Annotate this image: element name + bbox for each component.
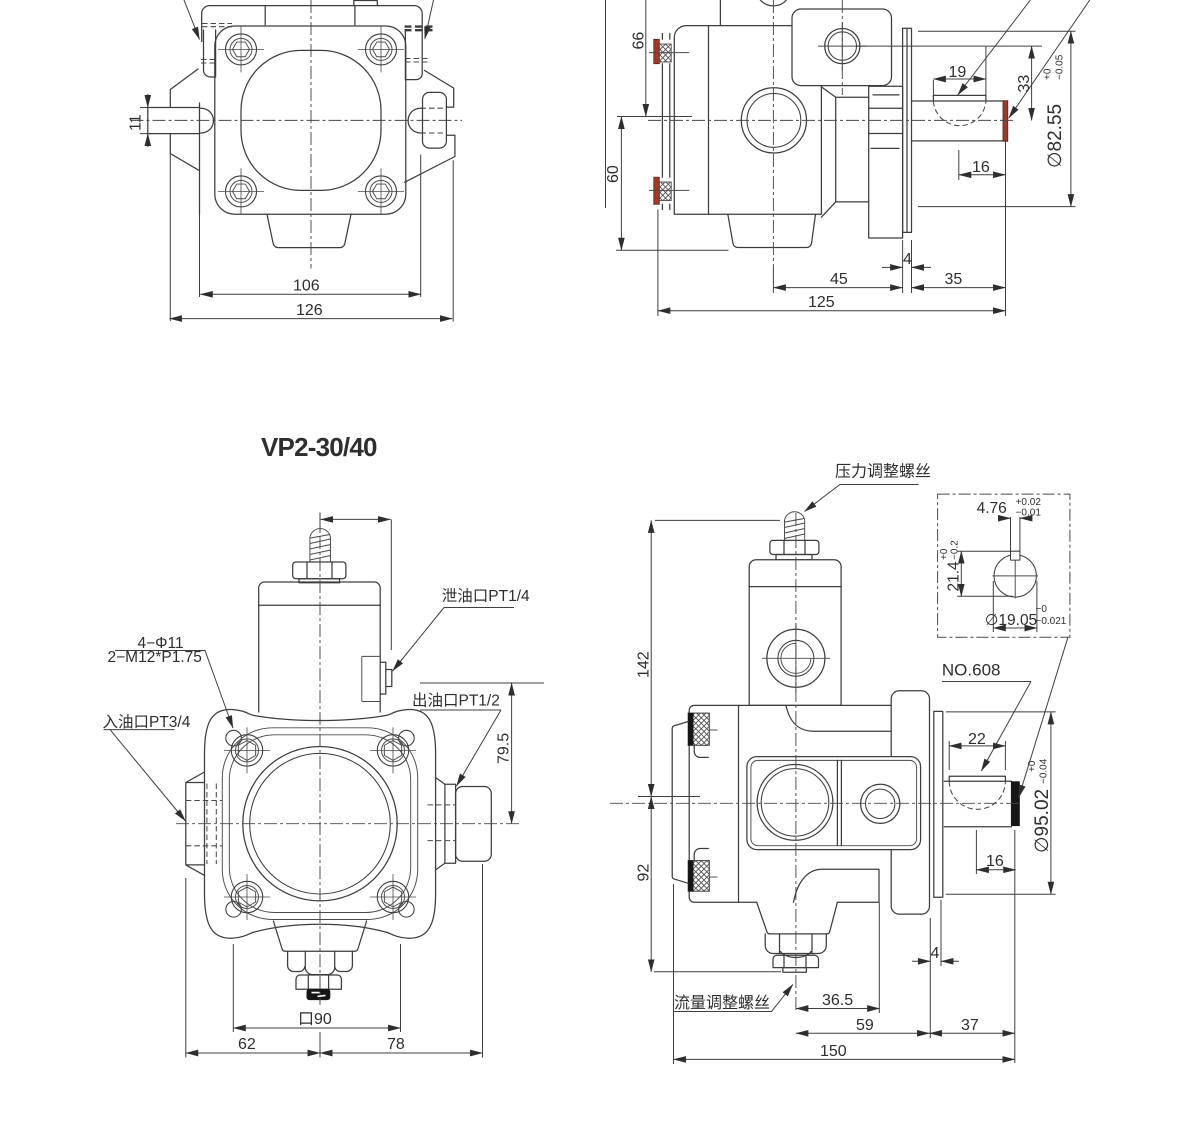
svg-text:4.76: 4.76: [977, 500, 1007, 517]
svg-text:NO.608: NO.608: [942, 660, 1001, 679]
svg-text:59: 59: [856, 1017, 874, 1034]
svg-text:79.5: 79.5: [496, 733, 513, 764]
svg-text:35: 35: [945, 271, 963, 288]
svg-text:66: 66: [631, 32, 648, 50]
svg-text:−0.01: −0.01: [1016, 508, 1042, 519]
svg-text:60: 60: [605, 165, 622, 183]
svg-text:−0: −0: [1036, 604, 1048, 615]
svg-text:出油口PT1/2: 出油口PT1/2: [412, 692, 500, 710]
svg-text:入油口PT3/4: 入油口PT3/4: [103, 713, 191, 731]
svg-text:21.4: 21.4: [946, 561, 963, 592]
svg-text:∅82.55: ∅82.55: [1045, 104, 1066, 168]
svg-text:142: 142: [636, 651, 653, 678]
svg-text:16: 16: [986, 853, 1004, 870]
svg-text:−0.021: −0.021: [1036, 616, 1067, 627]
svg-text:−0.04: −0.04: [1039, 758, 1050, 784]
svg-text:16: 16: [972, 159, 990, 176]
svg-text:78: 78: [387, 1036, 405, 1053]
svg-text:+0: +0: [1043, 68, 1054, 80]
svg-text:口90: 口90: [298, 1011, 332, 1028]
svg-text:2−M12*P1.75: 2−M12*P1.75: [108, 649, 202, 666]
svg-text:流量调整螺丝: 流量调整螺丝: [674, 994, 770, 1012]
svg-text:45: 45: [830, 271, 848, 288]
svg-text:−0.05: −0.05: [1055, 54, 1066, 80]
svg-text:压力调整螺丝: 压力调整螺丝: [835, 463, 931, 481]
svg-text:92: 92: [636, 864, 653, 882]
svg-text:106: 106: [293, 278, 320, 295]
svg-text:150: 150: [820, 1043, 847, 1060]
svg-text:62: 62: [238, 1036, 256, 1053]
svg-text:36.5: 36.5: [822, 992, 853, 1009]
svg-text:+0.02: +0.02: [1016, 497, 1042, 508]
svg-text:4: 4: [931, 945, 940, 962]
svg-text:∅95.02: ∅95.02: [1032, 789, 1053, 853]
svg-text:+0: +0: [1027, 760, 1038, 772]
svg-text:VP2-30/40: VP2-30/40: [261, 432, 377, 462]
svg-text:−0.2: −0.2: [950, 540, 961, 560]
svg-text:泄油口PT1/4: 泄油口PT1/4: [442, 587, 530, 605]
svg-text:∅19.05: ∅19.05: [985, 612, 1037, 629]
svg-text:19: 19: [949, 64, 967, 81]
svg-text:11: 11: [128, 114, 145, 131]
svg-text:22: 22: [968, 731, 986, 748]
svg-text:125: 125: [808, 294, 835, 311]
svg-text:+0: +0: [939, 548, 950, 560]
svg-text:4: 4: [903, 251, 912, 268]
svg-text:33: 33: [1016, 75, 1033, 93]
svg-text:37: 37: [961, 1017, 979, 1034]
svg-text:126: 126: [296, 302, 323, 319]
